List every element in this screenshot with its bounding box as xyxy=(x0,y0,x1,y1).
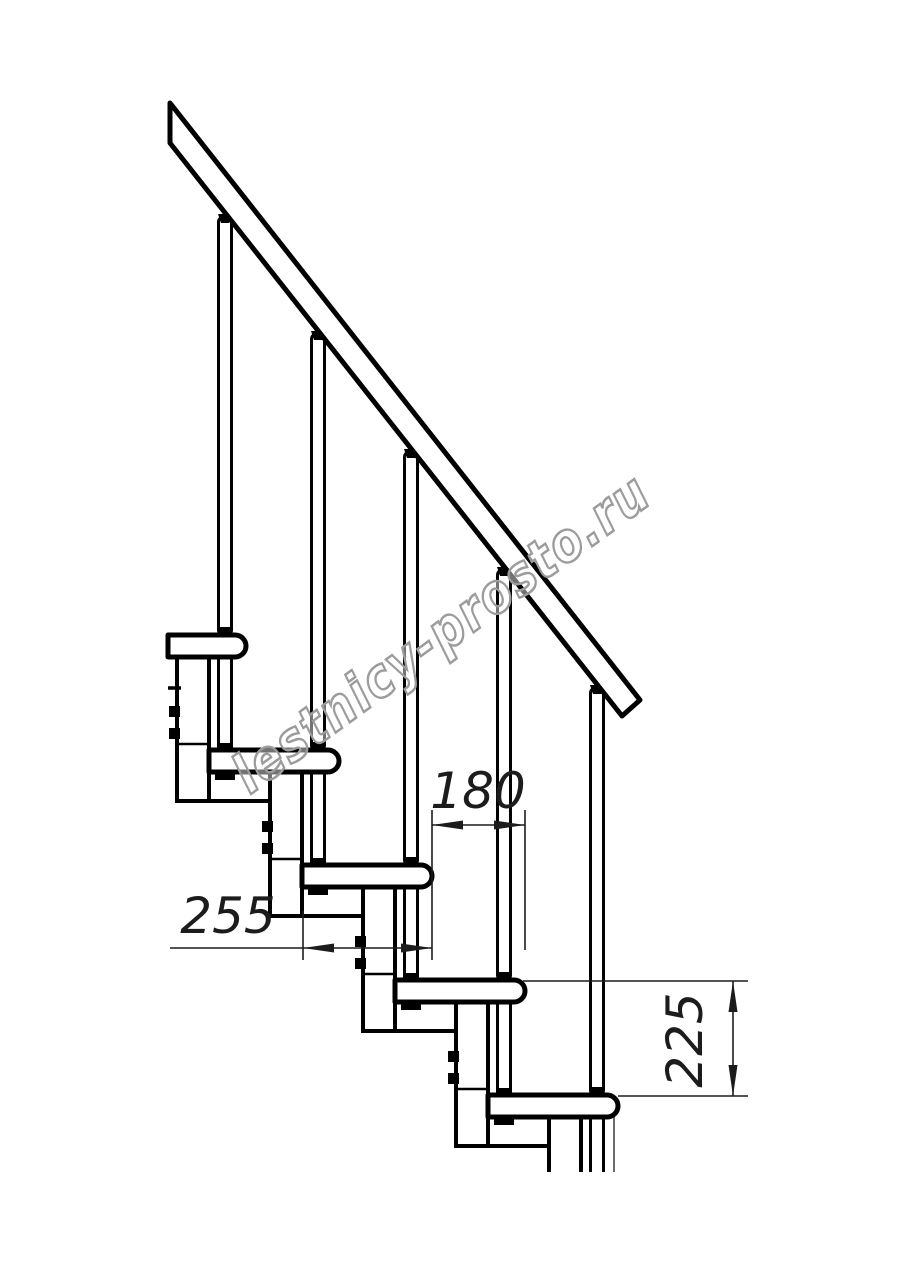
dimension-label-run: 180 xyxy=(430,762,525,820)
baluster-collar xyxy=(590,1087,604,1095)
tread-4 xyxy=(395,980,525,1002)
column-bolt xyxy=(448,1073,459,1084)
column-bolt xyxy=(448,1051,459,1062)
tread-5 xyxy=(488,1095,618,1117)
baluster-collar xyxy=(218,627,232,635)
column-module-5 xyxy=(549,1117,581,1172)
baluster-rod xyxy=(498,1002,511,1095)
baluster-nut xyxy=(401,1002,421,1010)
baluster-rod xyxy=(219,657,232,750)
dimension-rise-225 xyxy=(523,981,748,1096)
staircase-drawing: 180 255 225 lestnicy-prosto.ru xyxy=(0,0,914,1280)
baluster-1 xyxy=(219,217,232,635)
tread-3 xyxy=(302,865,432,887)
dimension-label-depth: 255 xyxy=(180,887,275,945)
column-bolt xyxy=(355,958,366,969)
baluster-collar xyxy=(404,857,418,865)
baluster-nut xyxy=(308,887,328,895)
column-bolt xyxy=(355,936,366,947)
column-bolt xyxy=(262,821,273,832)
column-module-3 xyxy=(363,887,395,1031)
arrowhead-left xyxy=(432,821,463,830)
column-bolt xyxy=(169,728,180,739)
baluster-5 xyxy=(591,688,604,1095)
baluster-collar xyxy=(497,972,511,980)
arrowhead-down xyxy=(729,1065,738,1096)
column-module-4 xyxy=(456,1002,488,1146)
column-bolt xyxy=(169,706,180,717)
dimension-label-rise: 225 xyxy=(656,992,714,1087)
baluster-nut xyxy=(215,772,235,780)
baluster-rod xyxy=(405,887,418,980)
baluster-rod xyxy=(591,1117,604,1172)
tread-1 xyxy=(168,635,246,657)
baluster-rod xyxy=(312,772,325,865)
arrowhead-up xyxy=(729,981,738,1012)
arrowhead-left xyxy=(303,944,334,953)
column-bolt xyxy=(262,843,273,854)
baluster-nut xyxy=(494,1117,514,1125)
column-module-1 xyxy=(177,657,209,801)
